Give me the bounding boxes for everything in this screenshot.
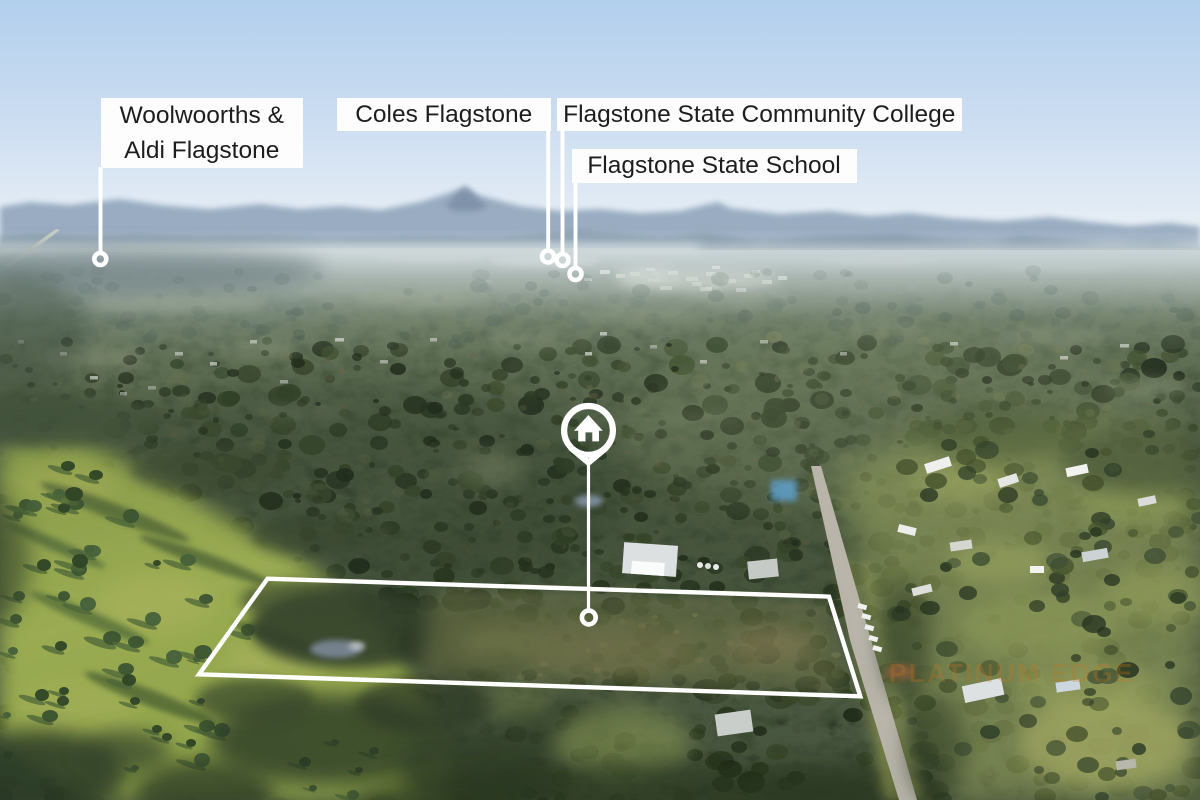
svg-text:PLATINUM EDGE: PLATINUM EDGE (889, 658, 1135, 688)
